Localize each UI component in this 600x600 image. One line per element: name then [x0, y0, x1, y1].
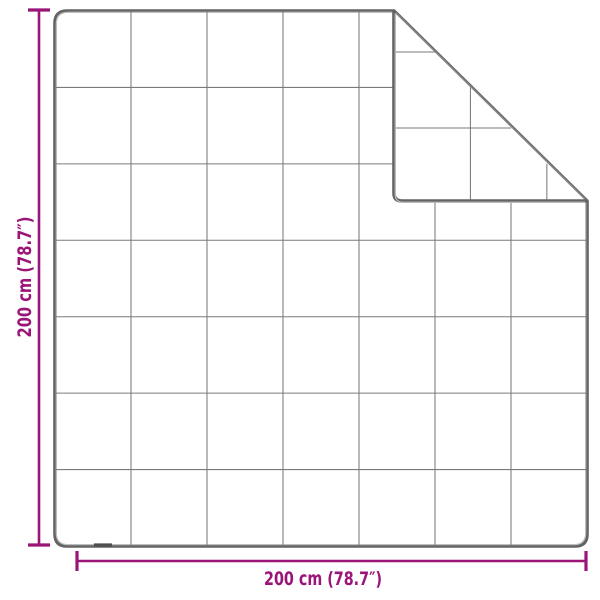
blanket: [55, 11, 587, 546]
blanket-outline: [55, 11, 587, 546]
diagram-canvas: 200 cm (78.7″) 200 cm (78.7″): [0, 0, 600, 600]
width-dimension-label: 200 cm (78.7″): [264, 568, 382, 590]
height-dimension-label: 200 cm (78.7″): [14, 217, 36, 338]
blanket-dimension-diagram: 200 cm (78.7″) 200 cm (78.7″): [0, 0, 600, 600]
